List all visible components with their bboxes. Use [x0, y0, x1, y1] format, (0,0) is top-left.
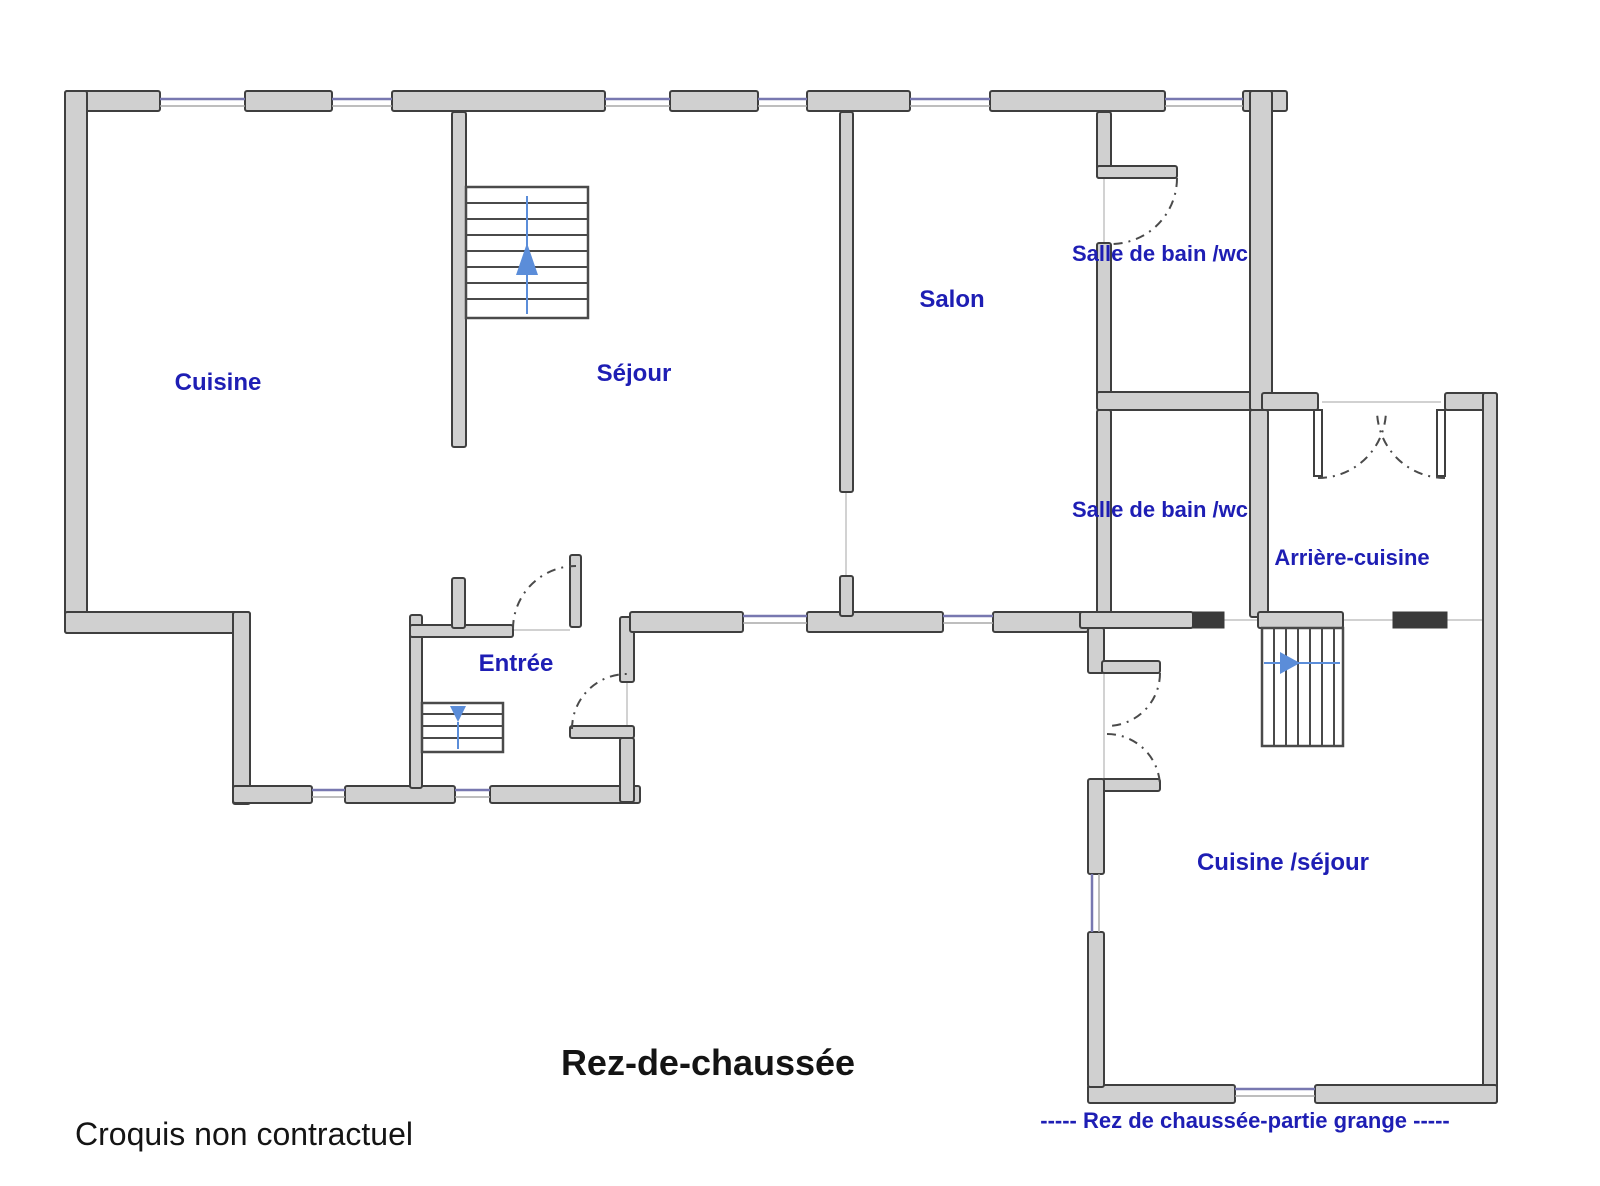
window: [312, 790, 345, 797]
wall-segment: [65, 612, 250, 633]
wall-segment: [233, 612, 250, 804]
wall-segment: [630, 612, 743, 632]
wall-segment: [392, 91, 605, 111]
walls-layer: [65, 91, 1497, 1103]
room-labels-layer: Cuisine Séjour Salon Salle de bain /wc S…: [175, 241, 1430, 876]
window: [1235, 1089, 1315, 1096]
wall-segment-dark: [1393, 612, 1447, 628]
wall-segment: [1315, 1085, 1497, 1103]
floor-title: Rez-de-chaussée: [561, 1042, 855, 1083]
wall-segment: [1262, 393, 1318, 410]
wall-segment: [1088, 932, 1104, 1087]
wall-segment: [65, 91, 87, 633]
wall-segment: [993, 612, 1088, 632]
room-label-cuisine-sejour: Cuisine /séjour: [1197, 849, 1369, 876]
wall-segment: [1250, 91, 1272, 410]
room-label-cuisine: Cuisine: [175, 369, 262, 396]
wall-segment: [1088, 1085, 1235, 1103]
disclaimer-note: Croquis non contractuel: [75, 1116, 413, 1152]
window: [332, 99, 392, 106]
stairs-sejour: [466, 187, 588, 318]
captions-layer: Rez-de-chaussée Croquis non contractuel …: [75, 1042, 1450, 1152]
door-jamb: [1437, 410, 1445, 476]
window: [758, 99, 807, 106]
wall-segment: [807, 91, 910, 111]
wall-segment: [670, 91, 758, 111]
wall-segment-dark: [1193, 612, 1224, 628]
room-label-salle-de-bain-1: Salle de bain /wc: [1072, 241, 1248, 266]
window: [910, 99, 990, 106]
wall-segment: [345, 786, 455, 803]
wall-segment: [840, 112, 853, 492]
wall-segment: [807, 612, 943, 632]
door-swing-arc: [1111, 178, 1177, 244]
window: [160, 99, 245, 106]
window: [1092, 874, 1099, 932]
window: [455, 790, 490, 797]
wall-segment: [1080, 612, 1193, 628]
room-label-sejour: Séjour: [597, 360, 672, 387]
stairs-entree: [422, 703, 503, 752]
room-label-entree: Entrée: [479, 650, 554, 677]
window: [743, 616, 807, 623]
wall-segment: [1088, 779, 1104, 874]
grange-note: ----- Rez de chaussée-partie grange ----…: [1040, 1108, 1450, 1133]
wall-segment: [452, 112, 466, 447]
window: [605, 99, 670, 106]
door-swing-arc: [572, 674, 627, 729]
wall-segment: [1250, 410, 1268, 617]
room-label-arriere-cuisine: Arrière-cuisine: [1274, 545, 1429, 570]
door-jamb: [1314, 410, 1322, 476]
door-swing-arc: [1107, 673, 1160, 726]
wall-segment: [233, 786, 312, 803]
window: [1165, 99, 1243, 106]
wall-segment: [1102, 779, 1160, 791]
wall-segment: [1097, 392, 1262, 410]
floor-plan-drawing: Cuisine Séjour Salon Salle de bain /wc S…: [0, 0, 1600, 1186]
door-swing-arc: [1377, 410, 1445, 478]
room-label-salle-de-bain-2: Salle de bain /wc: [1072, 497, 1248, 522]
wall-segment: [1097, 243, 1111, 403]
wall-segment: [1102, 661, 1160, 673]
wall-segment: [990, 91, 1165, 111]
wall-segment: [410, 615, 422, 788]
wall-segment: [840, 576, 853, 616]
wall-segment: [620, 738, 634, 802]
wall-segment: [452, 578, 465, 628]
floor-plan: Cuisine Séjour Salon Salle de bain /wc S…: [0, 0, 1600, 1186]
door-swing-arc: [1318, 410, 1386, 478]
wall-segment: [1483, 393, 1497, 1103]
wall-segment: [490, 786, 640, 803]
wall-segment: [1097, 166, 1177, 178]
wall-segment: [245, 91, 332, 111]
stairs-grange: [1262, 628, 1343, 746]
wall-segment: [1258, 612, 1343, 628]
window: [943, 616, 993, 623]
wall-segment: [570, 726, 634, 738]
room-label-salon: Salon: [919, 286, 984, 313]
door-swing-arc: [513, 566, 576, 629]
